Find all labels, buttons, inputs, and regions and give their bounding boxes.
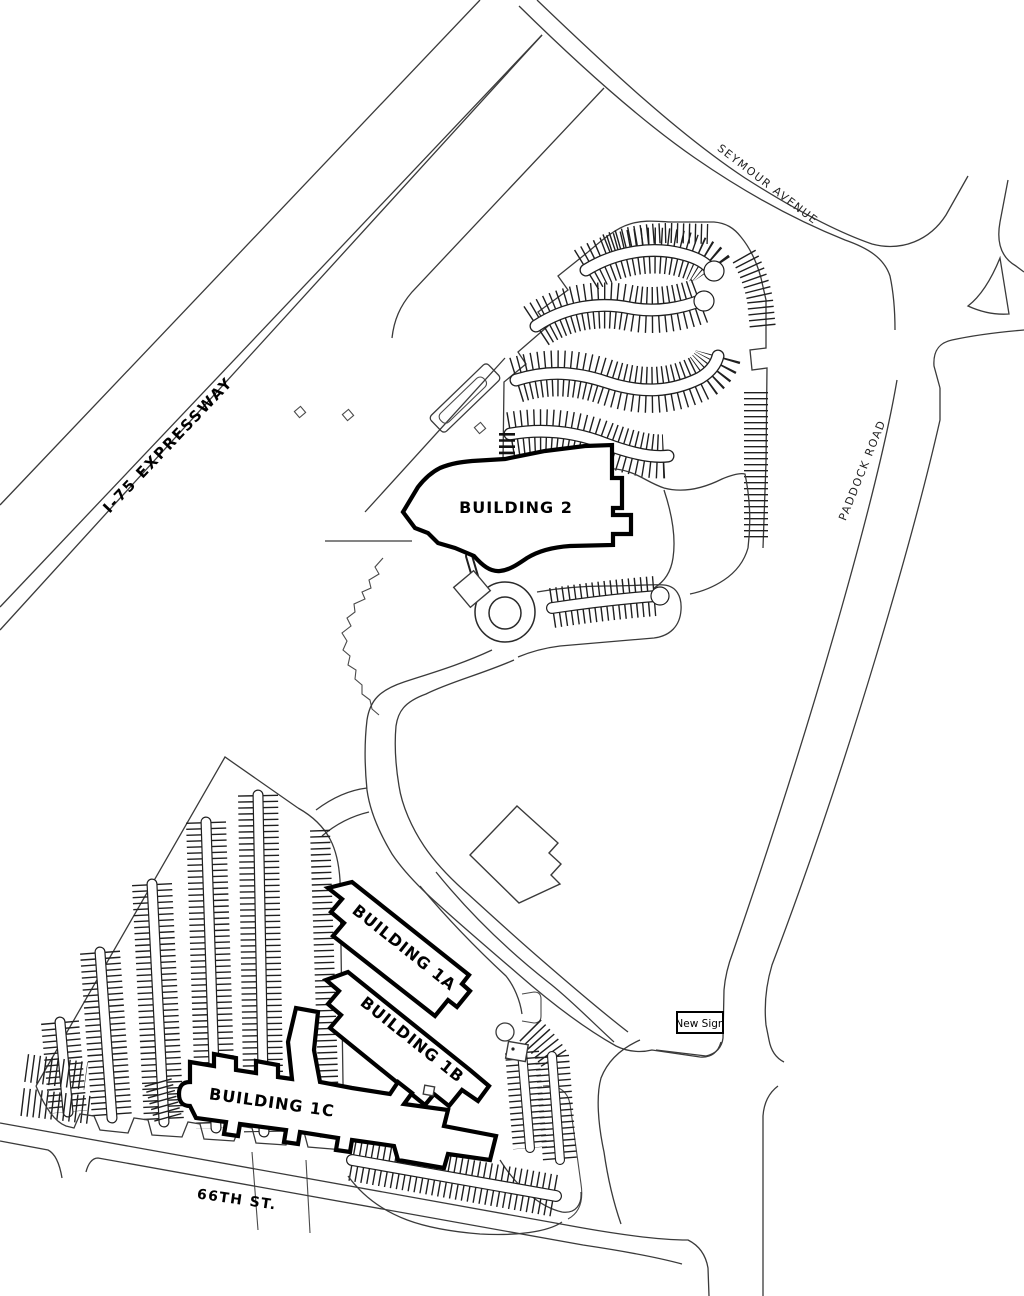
- paddock-label: PADDOCK ROAD: [836, 418, 888, 523]
- building-2-label: BUILDING 2: [459, 498, 573, 517]
- creek-line: [342, 558, 383, 715]
- i75-label: I-75 EXPRESSWAY: [99, 373, 236, 516]
- paddock-road: [656, 380, 940, 1296]
- site-plan: BUILDING 2: [0, 0, 1024, 1296]
- new-sign-callout: New Sign: [675, 1012, 724, 1033]
- planter-island: [496, 1023, 514, 1041]
- roundabout-island: [489, 597, 521, 629]
- outlot-building: [470, 806, 561, 903]
- building-2: BUILDING 2: [403, 445, 631, 607]
- site-plan-drawing: BUILDING 2: [0, 0, 1024, 1296]
- entrance-sign-marker: [474, 422, 485, 433]
- parking-rows-curved: [510, 251, 724, 457]
- roundabout-court: [475, 582, 681, 657]
- seymour-label: SEYMOUR AVENUE: [715, 142, 821, 228]
- junction-island: [968, 258, 1009, 314]
- new-sign-label: New Sign: [675, 1018, 724, 1030]
- sixty-sixth-label: 66TH ST.: [196, 1186, 278, 1213]
